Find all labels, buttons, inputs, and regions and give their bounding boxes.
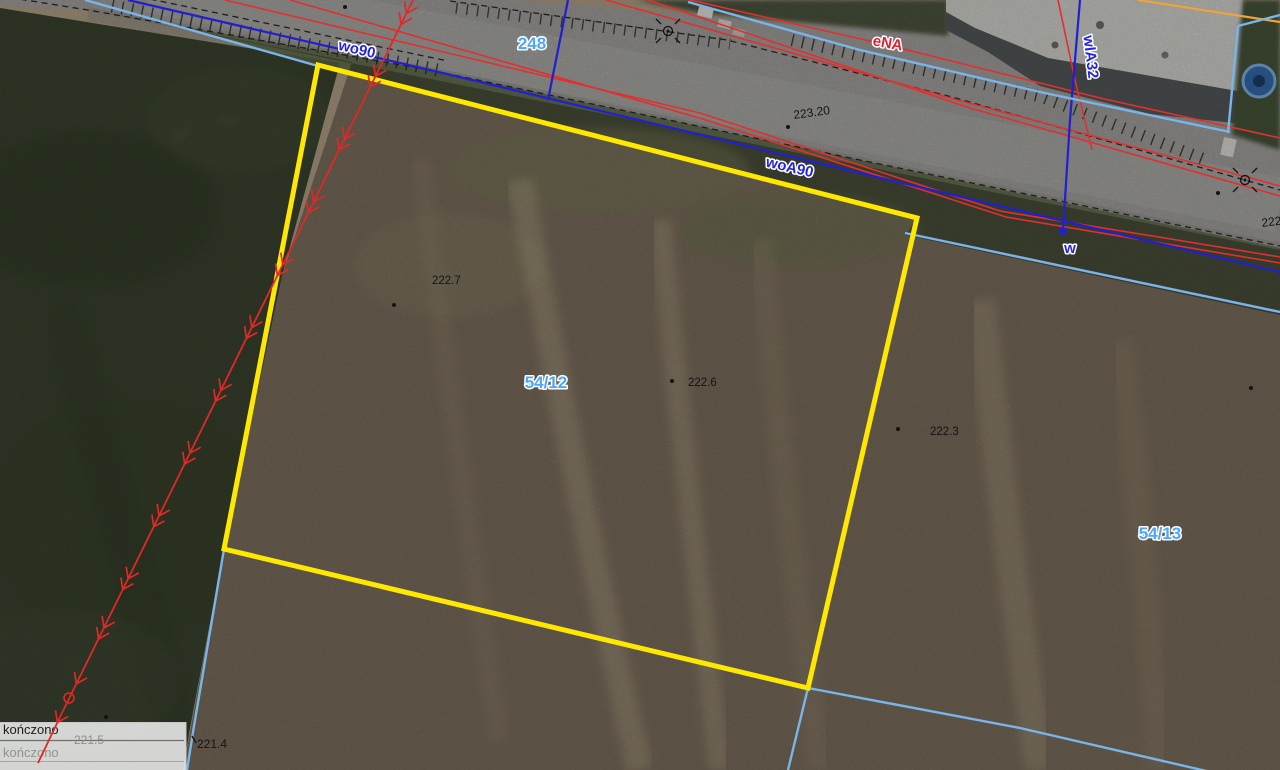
map-viewport[interactable]: 248 54/12 54/13 wo90 woA90 wlA32 w eNA 2… (0, 0, 1280, 770)
parcel-label-54-12: 54/12 (525, 373, 568, 392)
elevation-label-221-5: 221.5 (74, 733, 104, 747)
water-node (1060, 228, 1067, 235)
elevation-label-221-4: 221.4 (197, 737, 227, 751)
elevation-label-222-3: 222.3 (930, 426, 959, 438)
map-canvas[interactable]: 248 54/12 54/13 wo90 woA90 wlA32 w eNA 2… (0, 0, 1280, 770)
aerial-photo (0, 0, 1280, 770)
elevation-label-edge: 222 (1261, 214, 1280, 230)
parcel-label-248: 248 (518, 34, 546, 53)
water-label-w: w (1063, 240, 1076, 257)
results-row-1[interactable]: kończono (3, 722, 59, 737)
elevation-label-222-6: 222.6 (688, 377, 717, 389)
results-row-2[interactable]: kończono (3, 745, 59, 760)
elevation-label-222-7: 222.7 (432, 275, 461, 287)
parcel-label-54-13: 54/13 (1139, 524, 1182, 543)
results-panel: kończono kończono 221.5 (0, 722, 186, 770)
